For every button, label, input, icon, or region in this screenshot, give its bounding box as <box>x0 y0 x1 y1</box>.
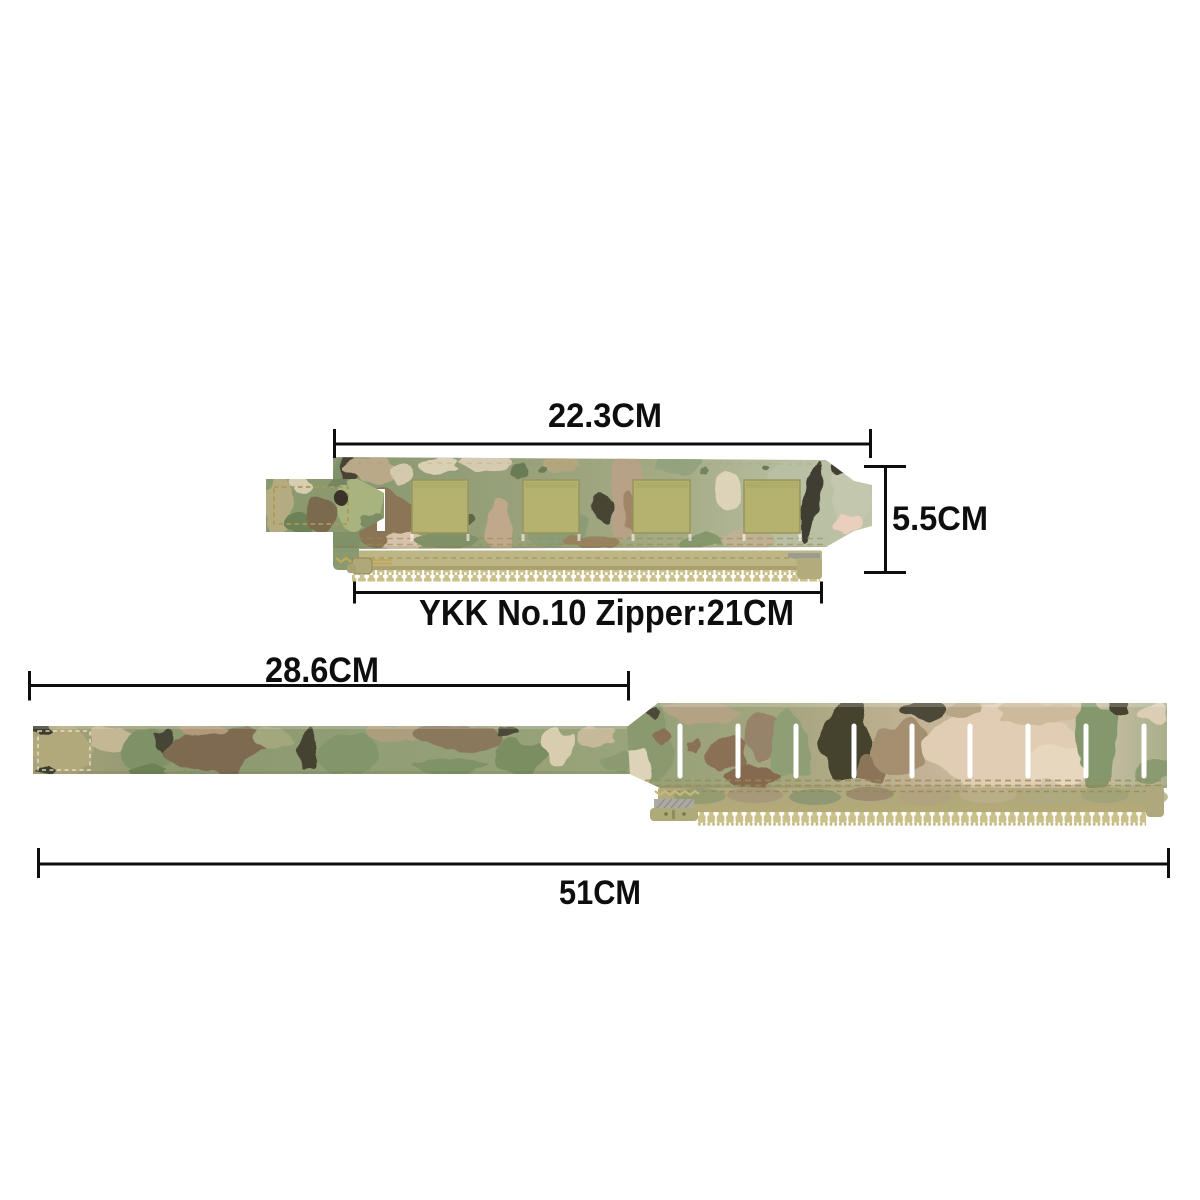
svg-text:YKK No.10 Zipper:21CM: YKK No.10 Zipper:21CM <box>419 592 794 633</box>
svg-text:51CM: 51CM <box>559 874 641 912</box>
svg-text:5.5CM: 5.5CM <box>892 500 988 538</box>
svg-text:22.3CM: 22.3CM <box>548 397 662 435</box>
svg-text:28.6CM: 28.6CM <box>265 651 379 690</box>
